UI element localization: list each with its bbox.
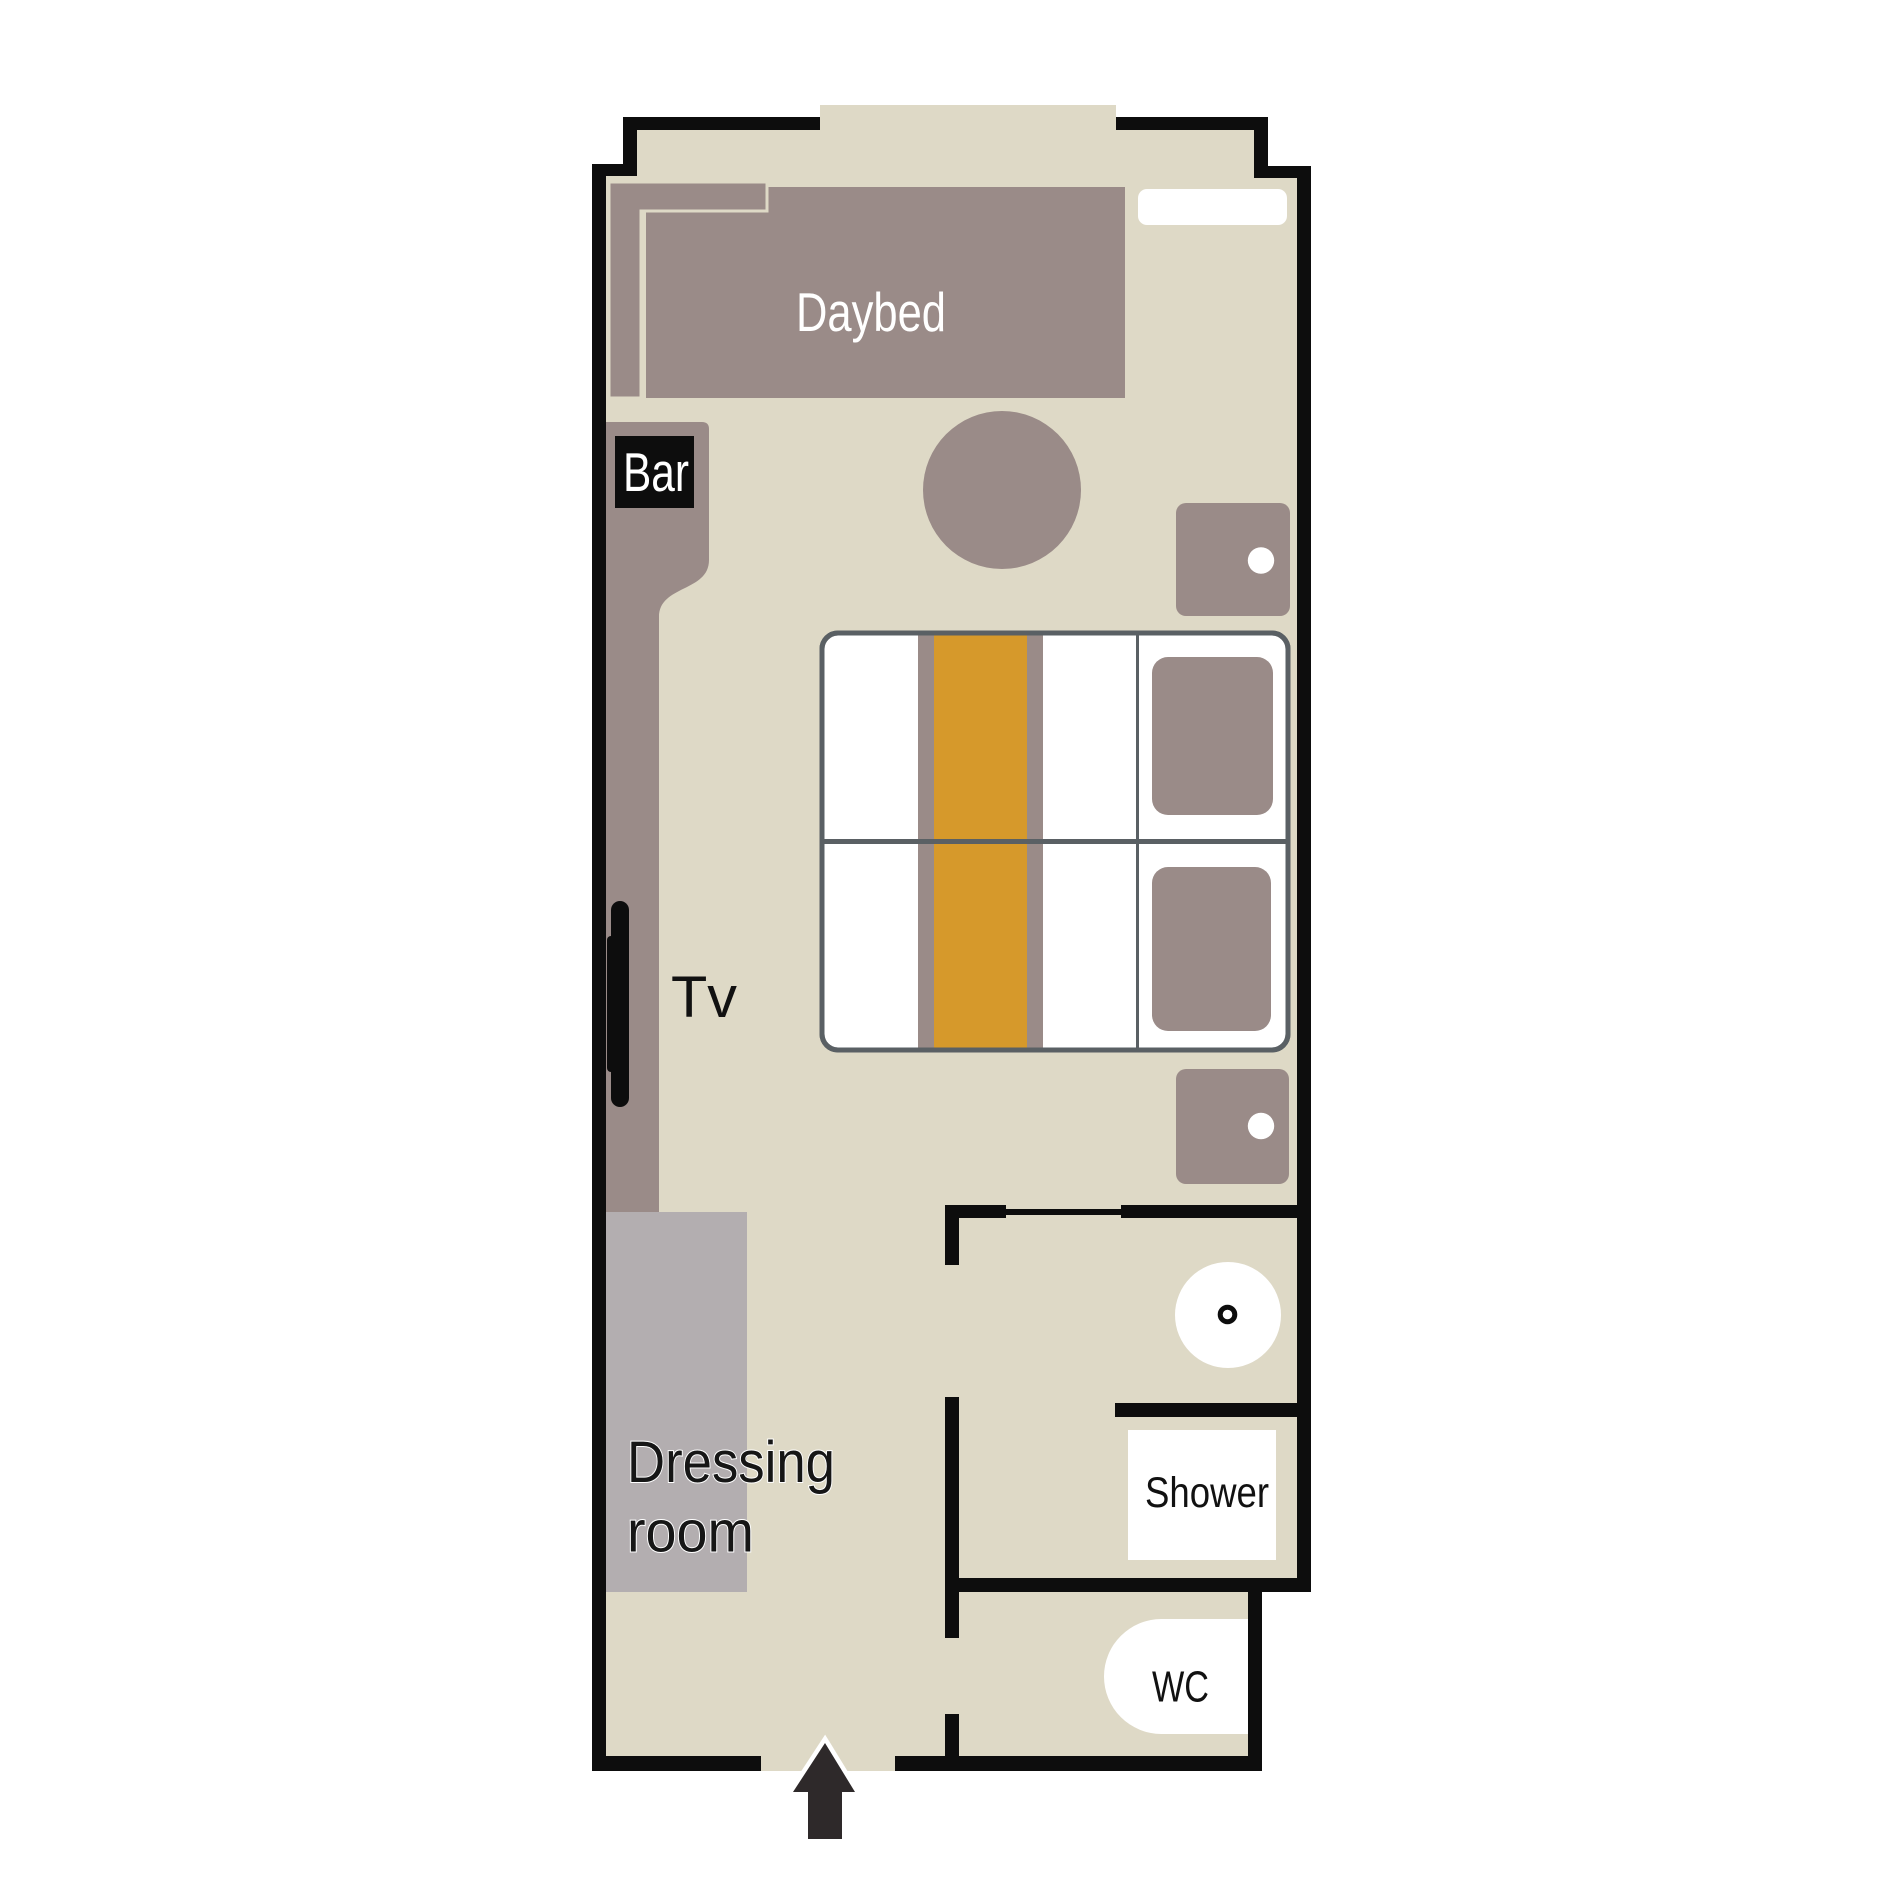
svg-text:Daybed: Daybed — [796, 281, 946, 343]
svg-text:Shower: Shower — [1145, 1469, 1269, 1517]
svg-text:Bar: Bar — [623, 441, 689, 503]
svg-text:Tv: Tv — [671, 965, 737, 1030]
svg-text:WC: WC — [1152, 1663, 1209, 1712]
svg-text:Dressing: Dressing — [627, 1430, 835, 1495]
svg-text:room: room — [627, 1500, 754, 1565]
